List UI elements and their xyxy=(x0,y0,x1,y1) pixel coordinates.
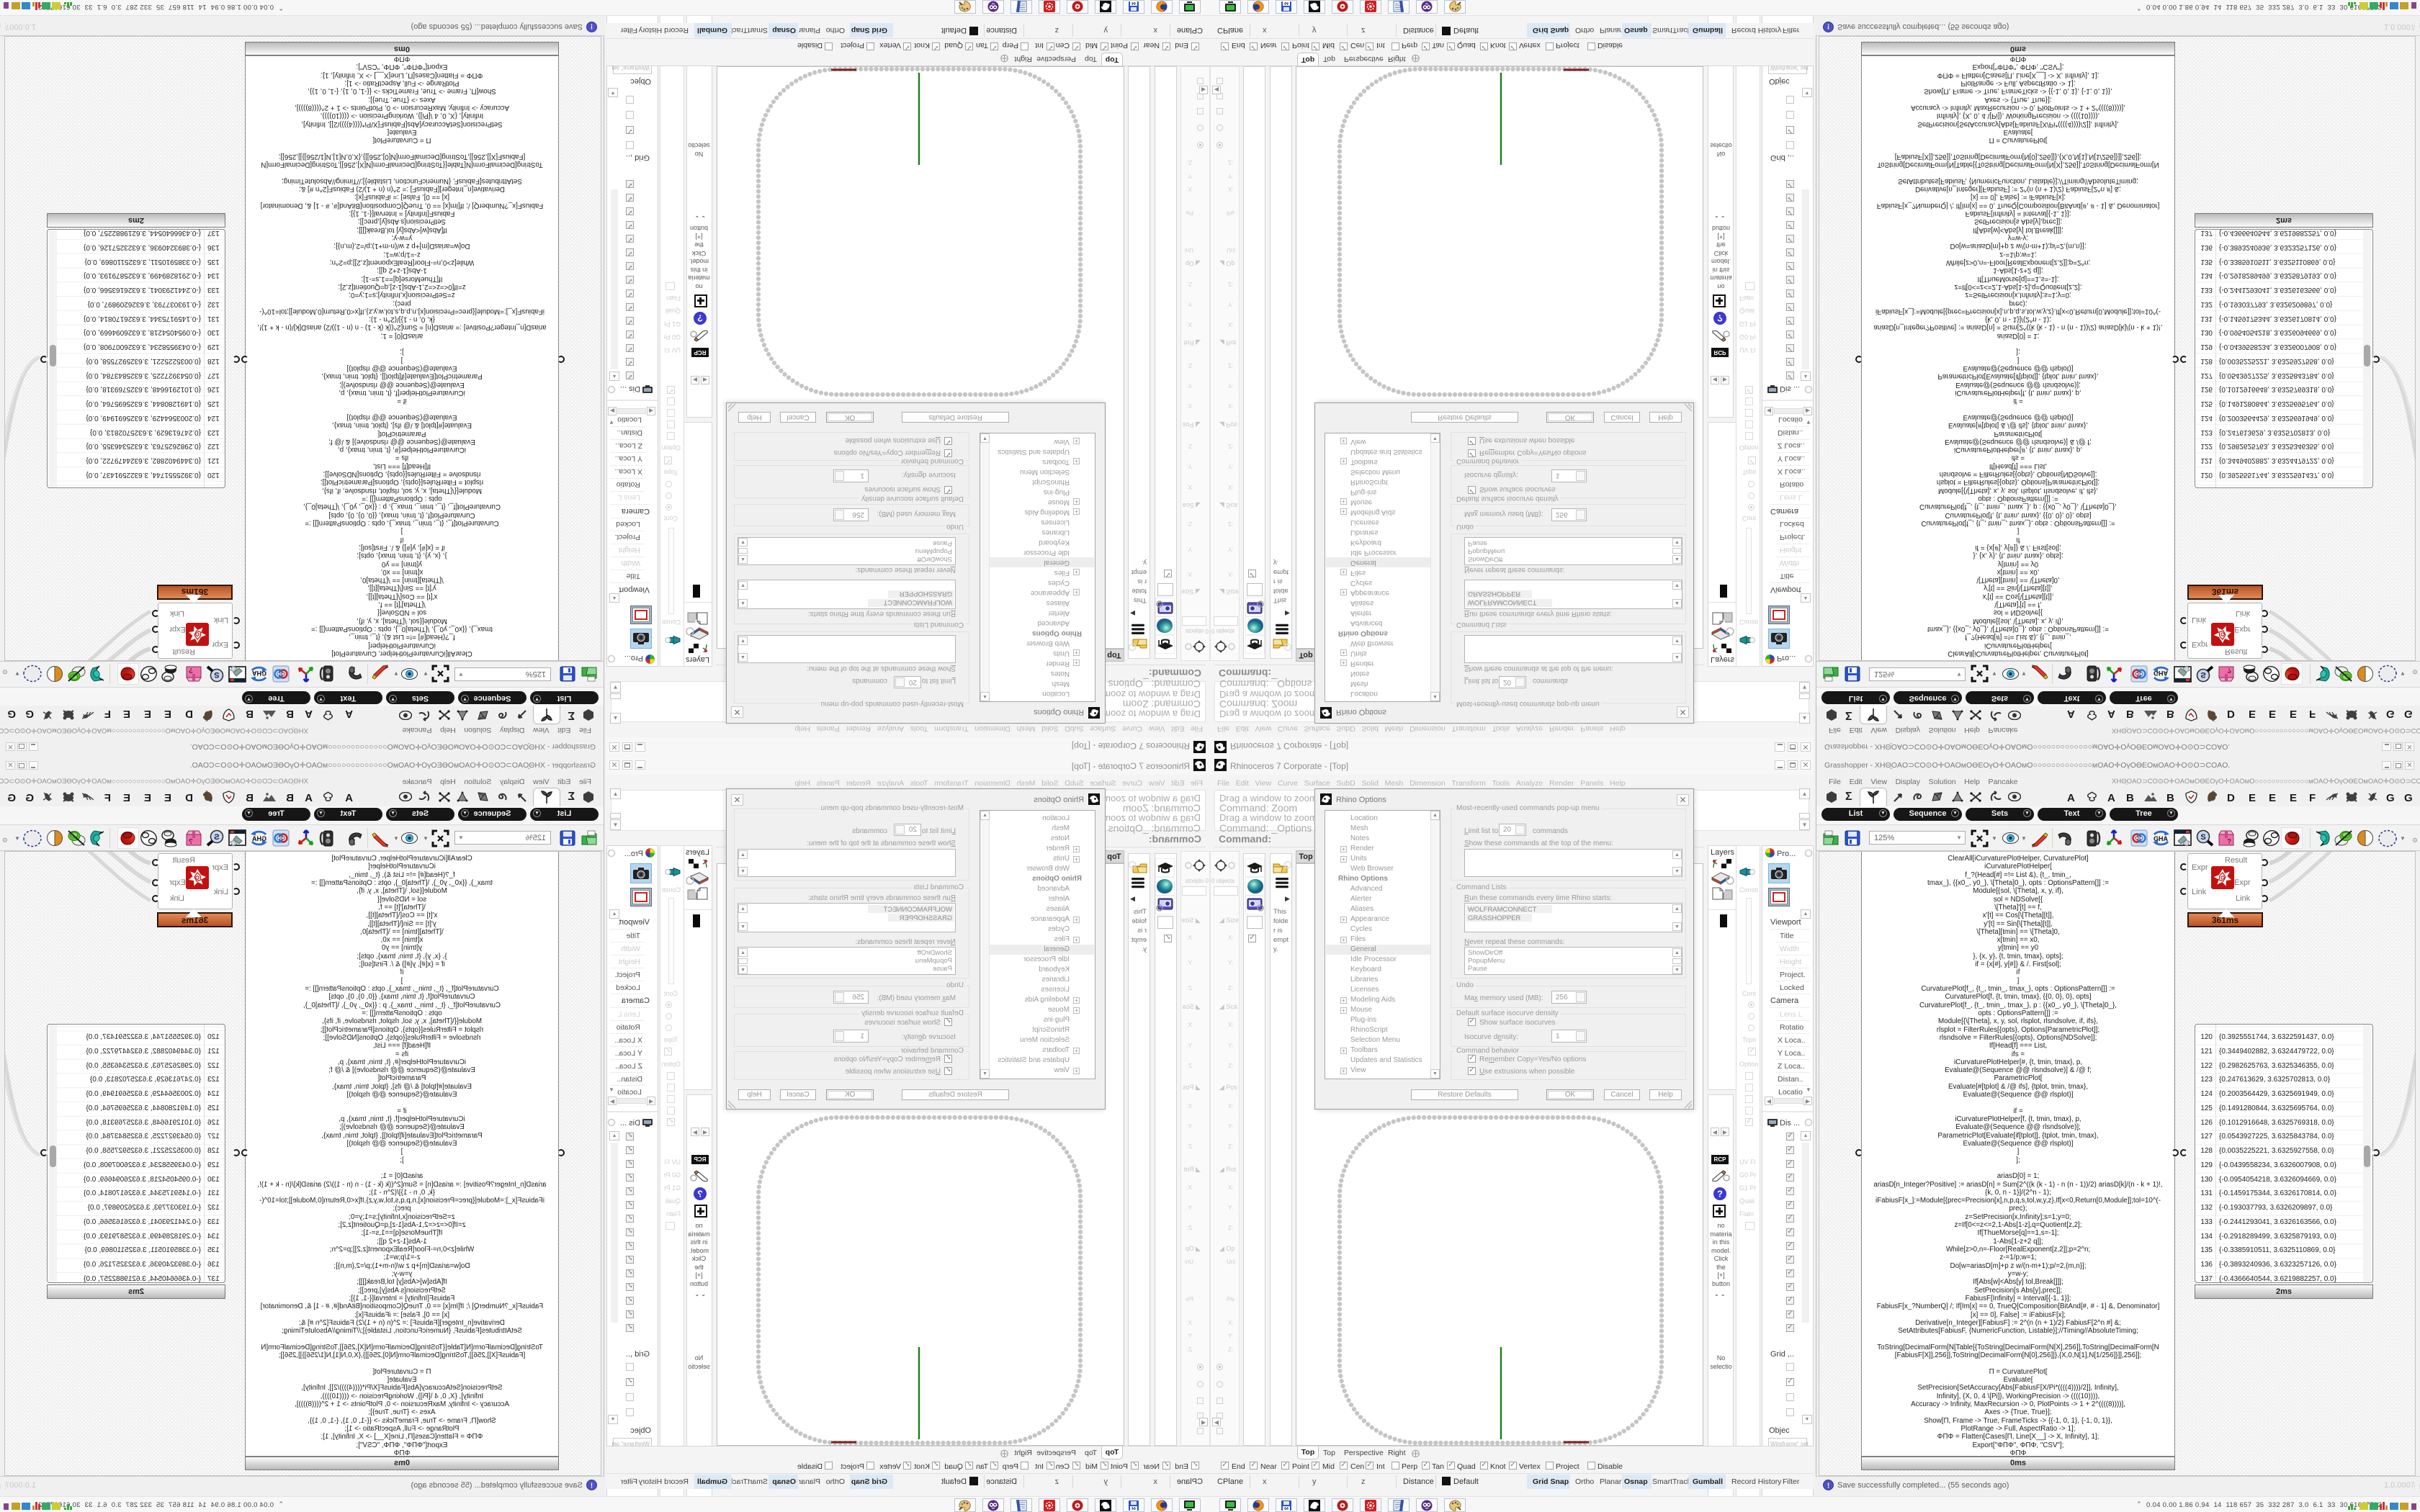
svg-text:?: ? xyxy=(2227,666,2231,674)
svg-text:?: ? xyxy=(2227,838,2231,846)
svg-text:64: 64 xyxy=(1131,1507,1136,1511)
svg-text:?: ? xyxy=(1717,1189,1723,1200)
svg-text:64: 64 xyxy=(1131,1,1136,6)
svg-text:S: S xyxy=(214,833,219,842)
svg-text:?: ? xyxy=(189,838,193,846)
svg-text:S: S xyxy=(2200,670,2205,679)
svg-text:S: S xyxy=(2200,833,2205,842)
svg-text:GHA: GHA xyxy=(2154,670,2169,677)
svg-text:64: 64 xyxy=(1284,1507,1289,1511)
svg-text:!: ! xyxy=(1827,1482,1829,1490)
svg-text:?: ? xyxy=(697,313,703,324)
svg-text:!: ! xyxy=(591,22,593,30)
svg-text:GHA: GHA xyxy=(252,835,267,842)
svg-text:!: ! xyxy=(1827,22,1829,30)
svg-text:?: ? xyxy=(189,666,193,674)
svg-text:!: ! xyxy=(591,1482,593,1490)
svg-text:GHA: GHA xyxy=(2154,835,2169,842)
svg-text:?: ? xyxy=(697,1189,703,1200)
svg-text:64: 64 xyxy=(1284,1,1289,6)
svg-text:GHA: GHA xyxy=(252,670,267,677)
svg-text:?: ? xyxy=(1717,313,1723,324)
svg-text:S: S xyxy=(214,670,219,679)
